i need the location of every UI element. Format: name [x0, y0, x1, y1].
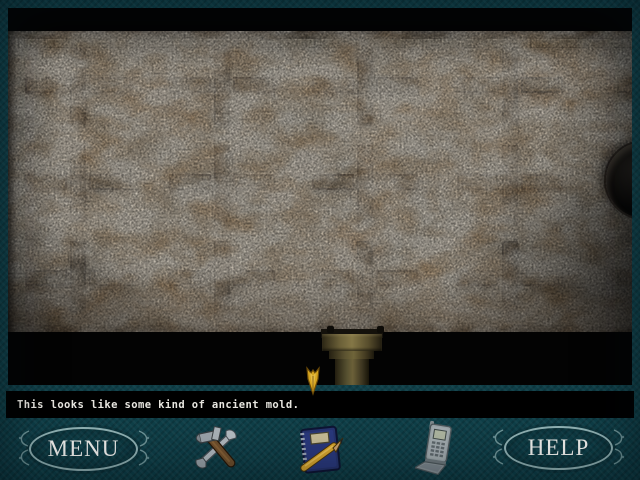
mold-cross-arm — [25, 77, 67, 93]
help-button[interactable]: HELP — [504, 426, 613, 470]
mold-cross-arm — [25, 270, 67, 286]
mold-cross-arm — [457, 270, 499, 286]
mold-cross-arm — [89, 77, 131, 93]
tools-icon[interactable] — [193, 425, 241, 473]
mold-cross-bar — [70, 241, 86, 318]
menu-button[interactable]: MENU — [29, 427, 138, 471]
help-button-label: HELP — [528, 435, 590, 461]
mold-cross-arm — [312, 77, 354, 93]
mold-cross-bar — [357, 48, 373, 125]
mold-cross-arm — [312, 270, 354, 286]
mold-cross-grid — [8, 31, 632, 332]
mold-cross-arm — [376, 174, 418, 190]
mold-cross-arm — [376, 270, 418, 286]
mold-cross-arm — [169, 270, 211, 286]
mold-cross-bar — [502, 48, 518, 125]
menu-button-label: MENU — [48, 436, 120, 462]
help-left-flourish — [489, 427, 505, 467]
pedestal-step — [329, 351, 374, 359]
mold-cross-arm — [169, 77, 211, 93]
mold-cross-arm — [25, 174, 67, 190]
game-screen: This looks like some kind of ancient mol… — [0, 0, 640, 480]
mold-cross-arm — [617, 77, 632, 93]
mold-cross-arm — [521, 77, 563, 93]
mold-cross-bar — [70, 48, 86, 125]
mold-cross-bar — [502, 241, 518, 318]
mold-cross-arm — [89, 270, 131, 286]
mold-cross-bar — [214, 48, 230, 125]
mold-cross-arm — [169, 174, 211, 190]
mold-cross-arm — [233, 174, 275, 190]
mold-cross-arm — [312, 174, 354, 190]
pedestal-bolt — [377, 326, 384, 333]
plate-left-edge — [8, 31, 17, 332]
journal-icon[interactable] — [296, 424, 348, 476]
pedestal-flange — [322, 334, 382, 351]
mold-cross-arm — [89, 174, 131, 190]
mold-cross-arm — [457, 174, 499, 190]
caption-bar: This looks like some kind of ancient mol… — [6, 391, 634, 418]
mold-cross-arm — [457, 77, 499, 93]
menu-right-flourish — [137, 428, 153, 468]
help-right-flourish — [612, 427, 628, 467]
caption-text: This looks like some kind of ancient mol… — [6, 399, 299, 411]
mold-plate — [8, 31, 632, 332]
mold-cross-bar — [357, 241, 373, 318]
mold-cross-arm — [376, 77, 418, 93]
pedestal-bolt — [327, 326, 334, 333]
pedestal-column — [335, 359, 369, 385]
mold-cross-arm — [521, 270, 563, 286]
mold-cross-arm — [233, 270, 275, 286]
mold-cross-arm — [233, 77, 275, 93]
mold-cross-bar — [214, 241, 230, 318]
mold-cross-bar — [502, 145, 518, 222]
mold-cross-bar — [70, 145, 86, 222]
scene-viewport[interactable] — [8, 8, 632, 385]
mold-cross-bar — [357, 145, 373, 222]
mold-cross-bar — [214, 145, 230, 222]
phone-icon[interactable] — [415, 420, 459, 478]
mold-cross-arm — [521, 174, 563, 190]
mold-cross-arm — [617, 270, 632, 286]
